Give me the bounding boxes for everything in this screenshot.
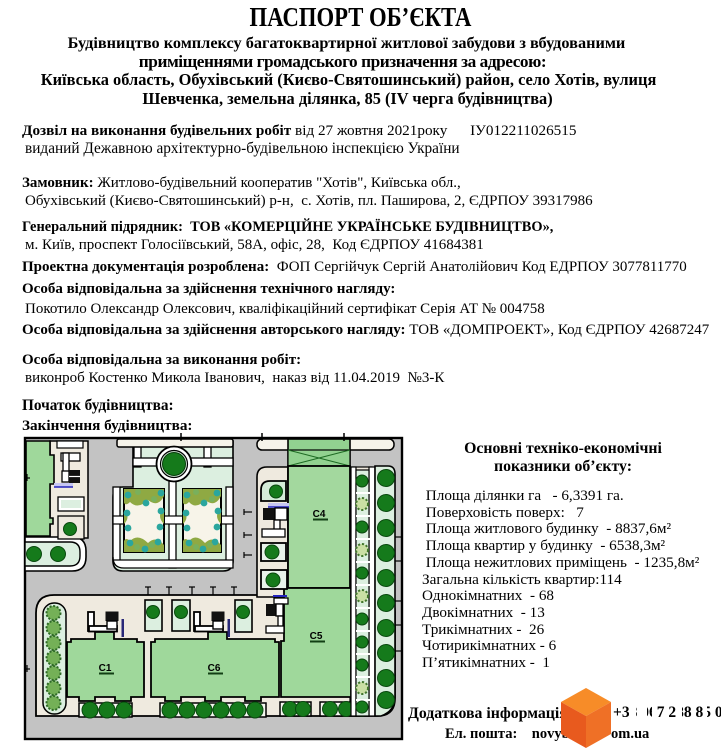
svg-text:С4: С4 [313,509,326,520]
svg-text:С6: С6 [208,663,221,674]
svg-text:С5: С5 [310,631,323,642]
svg-text:С1: С1 [99,663,112,674]
